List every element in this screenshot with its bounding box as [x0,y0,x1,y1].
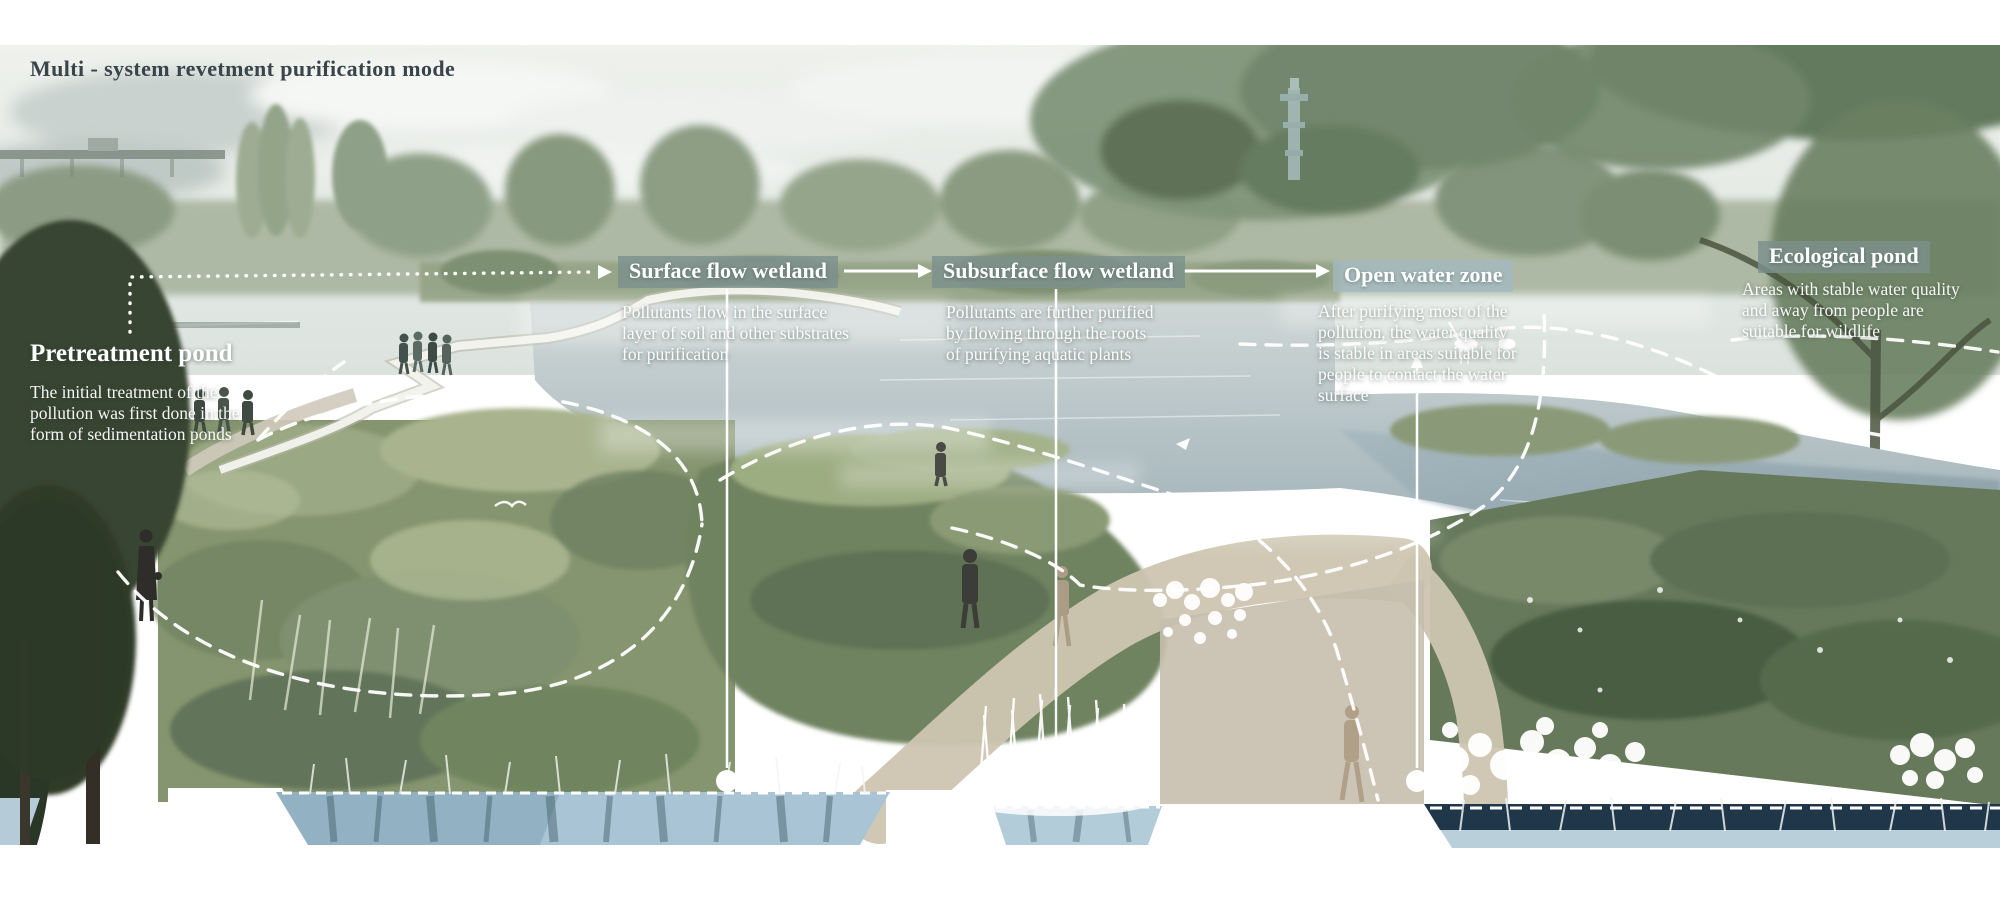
zone-description: After purifying most of the pollution, t… [1318,301,1548,406]
zone-surface-flow-wetland: Surface flow wetland Pollutants flow in … [618,256,902,365]
top-white-margin [0,0,2000,45]
purification-mode-panel: Multi - system revetment purification mo… [0,0,2000,900]
zone-description: Areas with stable water quality and away… [1742,279,1982,342]
zone-subsurface-flow-wetland: Subsurface flow wetland Pollutants are f… [932,256,1216,365]
zone-description: The initial treatment of the pollution w… [30,382,290,445]
page-title: Multi - system revetment purification mo… [30,56,455,82]
zone-label: Open water zone [1333,260,1513,292]
zone-ecological-pond: Ecological pond Areas with stable water … [1742,241,1982,342]
zone-label: Subsurface flow wetland [932,256,1185,288]
zone-pretreatment-pond: Pretreatment pond The initial treatment … [30,340,290,445]
zone-label: Pretreatment pond [30,340,290,368]
zone-open-water-zone: Open water zone After purifying most of … [1318,260,1548,406]
zone-description: Pollutants are further purified by flowi… [946,302,1216,365]
pointer-dot [1406,770,1428,792]
landscape-illustration [0,0,2000,900]
cross-section-water-right [1424,797,2000,848]
zone-label: Ecological pond [1758,241,1930,273]
zone-label: Surface flow wetland [618,256,838,288]
zone-description: Pollutants flow in the surface layer of … [622,302,902,365]
pointer-dot [716,770,738,792]
